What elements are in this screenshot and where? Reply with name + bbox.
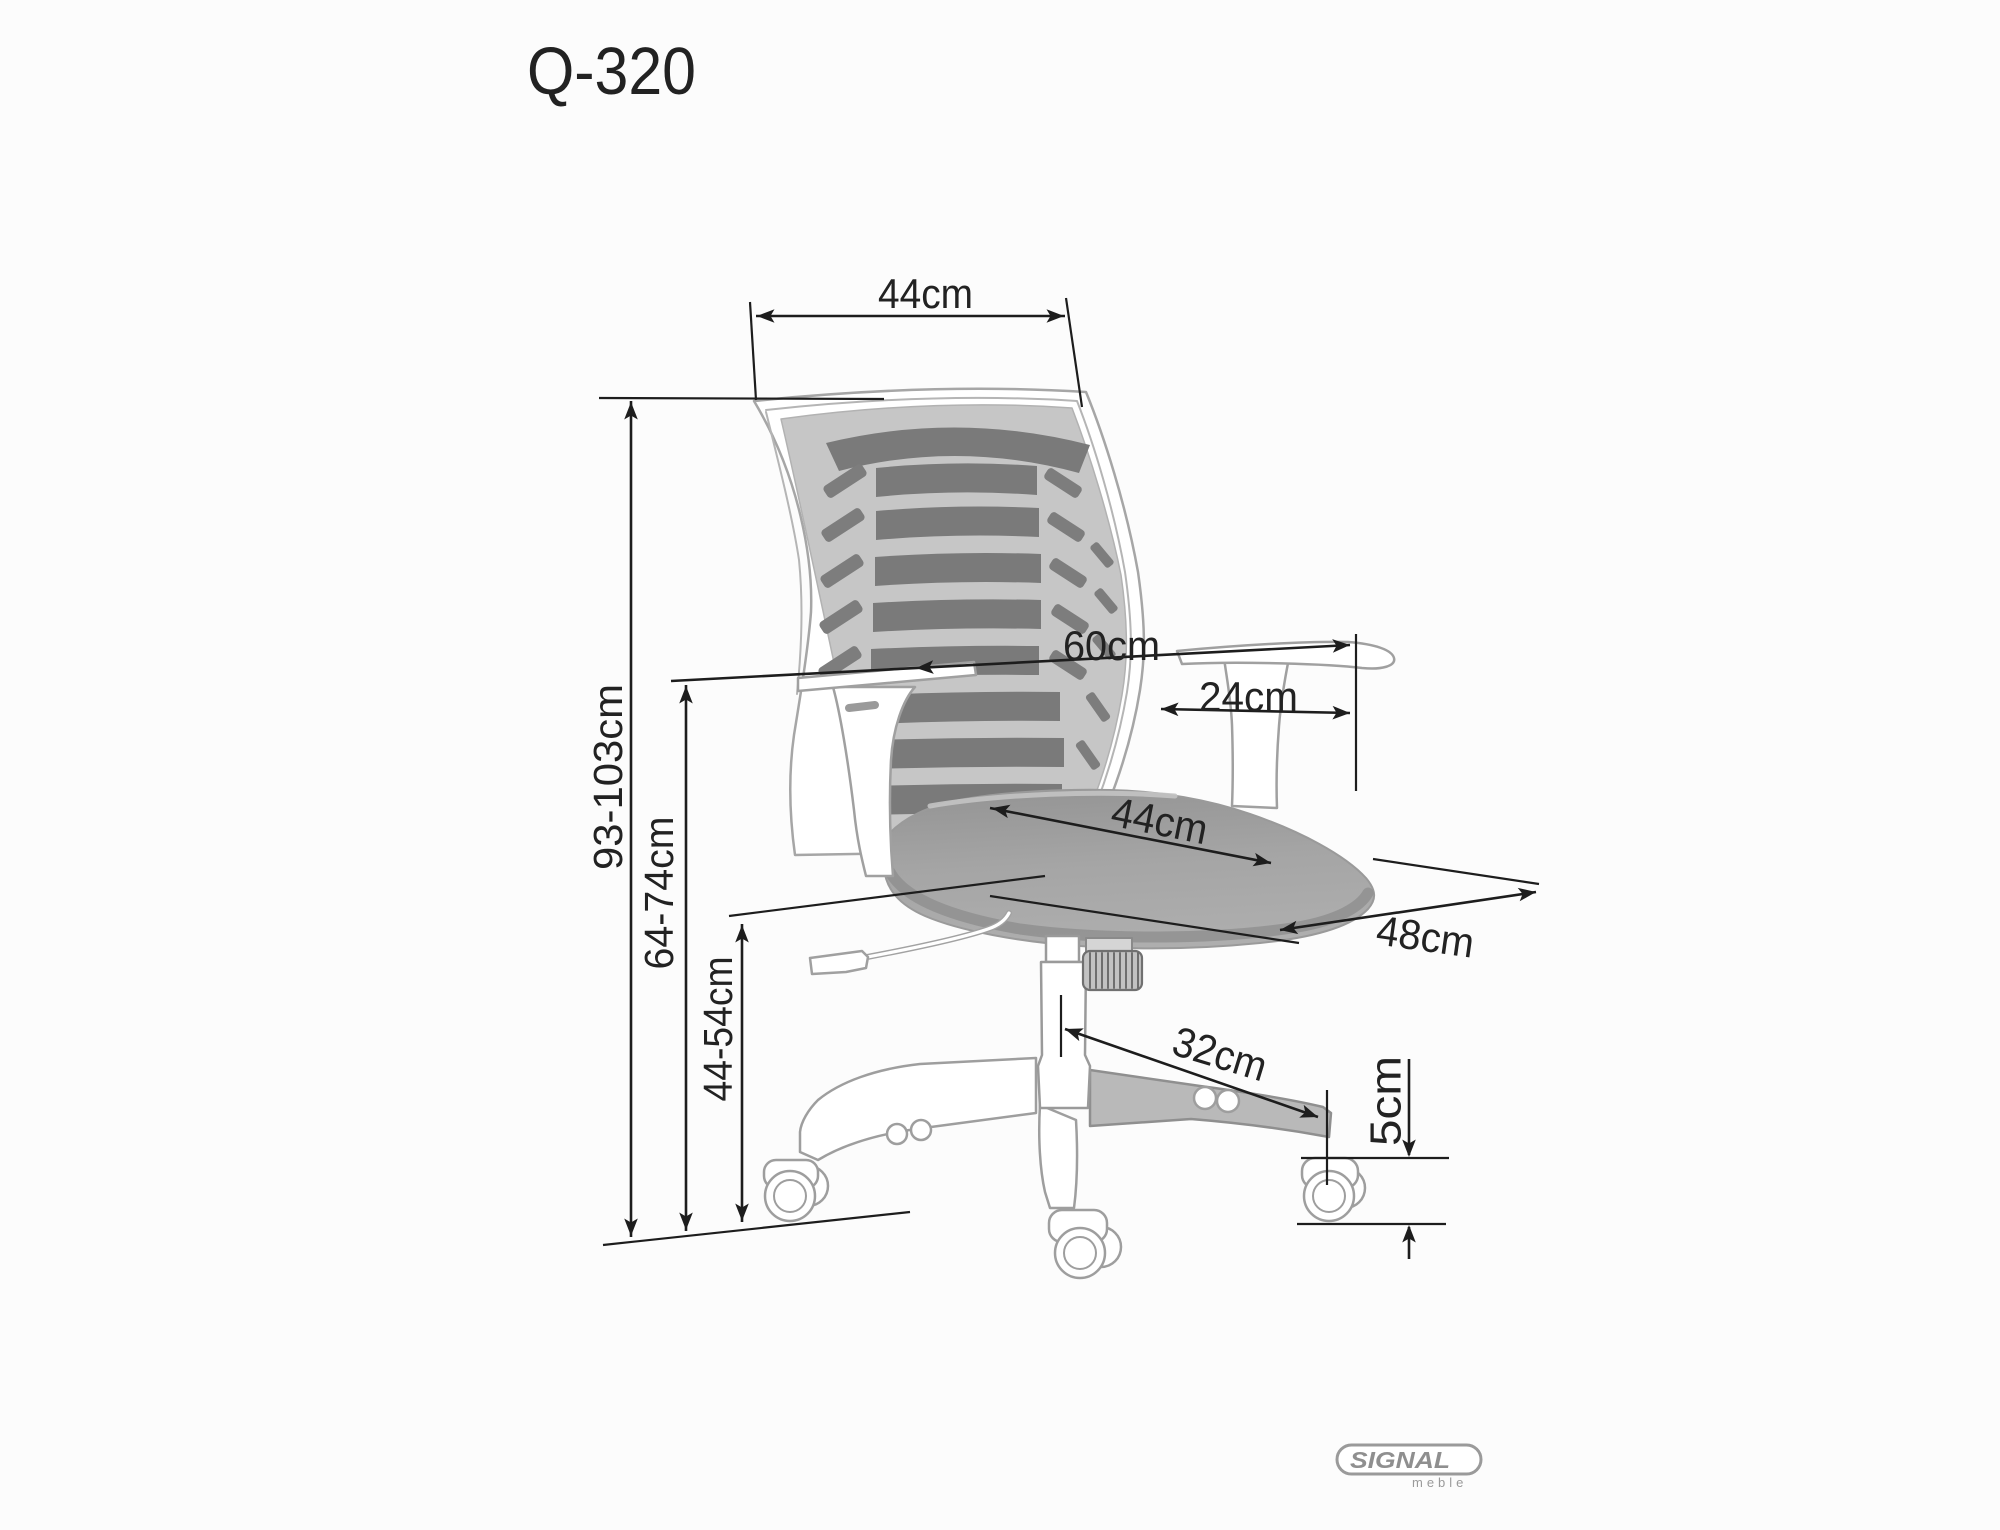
svg-text:24cm: 24cm [1199,673,1298,720]
svg-text:SIGNAL: SIGNAL [1350,1447,1450,1473]
svg-text:64-74cm: 64-74cm [636,817,682,970]
svg-text:Q-320: Q-320 [527,34,696,109]
svg-text:5cm: 5cm [1362,1056,1411,1146]
svg-text:44cm: 44cm [878,270,973,317]
svg-text:60cm: 60cm [1063,622,1160,669]
svg-text:93-103cm: 93-103cm [585,684,631,870]
svg-text:meble: meble [1412,1475,1467,1490]
svg-text:44-54cm: 44-54cm [695,957,741,1102]
